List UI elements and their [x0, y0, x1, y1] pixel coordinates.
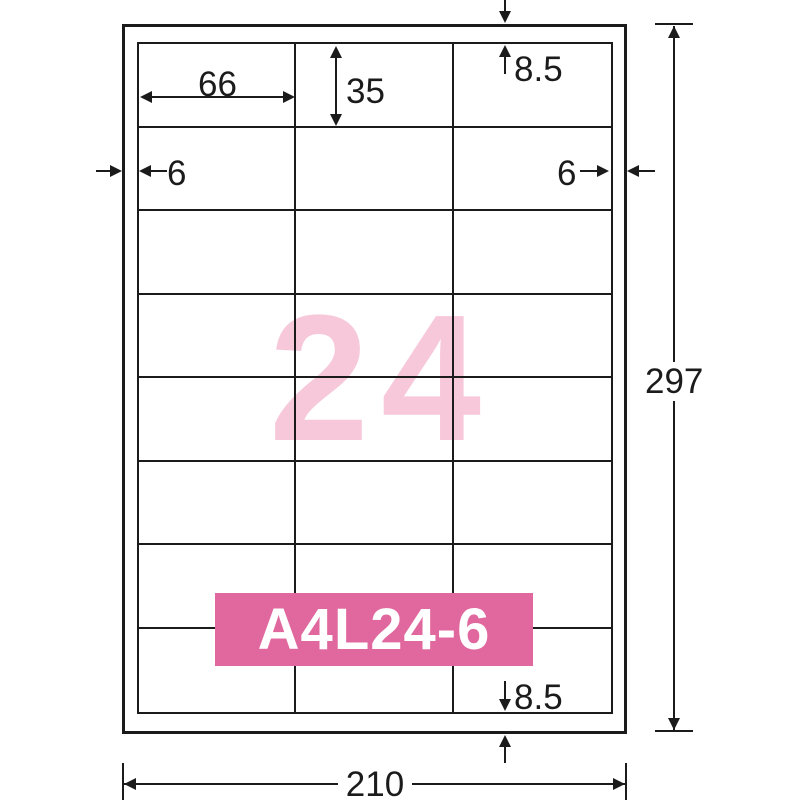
product-code-banner: A4L24-6	[215, 593, 533, 666]
label-cell	[296, 128, 453, 212]
page-width-value: 210	[338, 765, 412, 800]
product-code-text: A4L24-6	[258, 596, 491, 663]
top-margin-arrow-line	[504, 56, 506, 74]
label-cell	[139, 211, 296, 295]
label-height-arrow-down-icon	[330, 114, 342, 126]
label-cell	[454, 211, 611, 295]
label-cell	[296, 295, 453, 379]
label-height-value: 35	[346, 74, 385, 109]
right-outer-pointer-line	[639, 170, 655, 172]
right-outer-pointer-icon	[627, 165, 639, 177]
left-margin-arrow-icon	[139, 165, 151, 177]
page-width-arrow-left-icon	[124, 778, 136, 790]
page-height-arrow-down-icon	[668, 718, 680, 730]
label-cell	[454, 295, 611, 379]
right-margin-arrow-line	[580, 170, 597, 172]
label-width-value: 66	[140, 67, 295, 102]
page-height-top-tick	[655, 23, 693, 25]
label-cell	[296, 462, 453, 546]
label-cell	[454, 378, 611, 462]
top-margin-value: 8.5	[514, 52, 563, 87]
bottom-margin-value: 8.5	[514, 680, 563, 715]
label-cell	[296, 378, 453, 462]
page-height-arrow-up-icon	[668, 26, 680, 38]
right-margin-arrow-icon	[597, 165, 609, 177]
label-cell	[139, 462, 296, 546]
page-height-bottom-tick	[655, 730, 693, 732]
label-cell	[454, 462, 611, 546]
label-cell	[296, 211, 453, 295]
top-outer-pointer-icon	[499, 11, 511, 23]
bottom-margin-arrow-icon	[499, 699, 511, 711]
left-margin-arrow-line	[151, 170, 167, 172]
bottom-margin-arrow-line	[504, 681, 506, 699]
label-cell	[139, 295, 296, 379]
page-width-arrow-right-icon	[613, 778, 625, 790]
bottom-outer-pointer-line	[504, 746, 506, 763]
page-height-value: 297	[645, 362, 703, 401]
left-outer-pointer-icon	[110, 165, 122, 177]
right-margin-value: 6	[557, 156, 576, 191]
label-cell	[139, 378, 296, 462]
page-width-right-tick	[625, 763, 627, 800]
left-margin-value: 6	[167, 156, 186, 191]
label-height-arrow-line	[335, 56, 337, 116]
label-sheet-diagram: 24 A4L24-6 66 35 8.5 6 6 297 8.5	[0, 0, 800, 800]
